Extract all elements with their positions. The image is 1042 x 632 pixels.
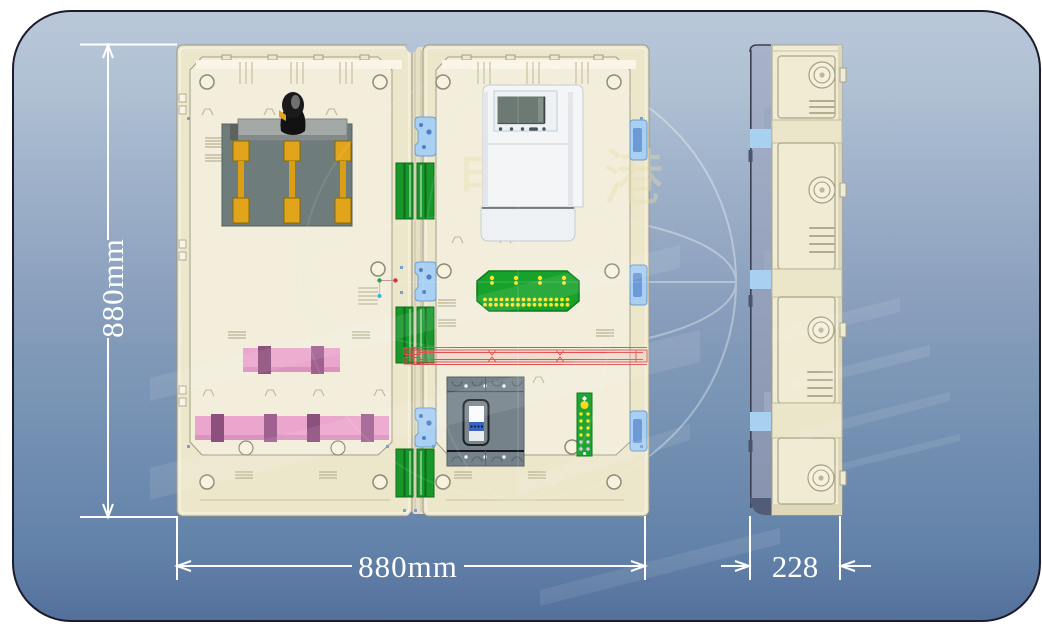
svg-text:880mm: 880mm: [358, 549, 458, 584]
svg-text:228: 228: [772, 549, 819, 584]
svg-text:880mm: 880mm: [95, 238, 130, 338]
